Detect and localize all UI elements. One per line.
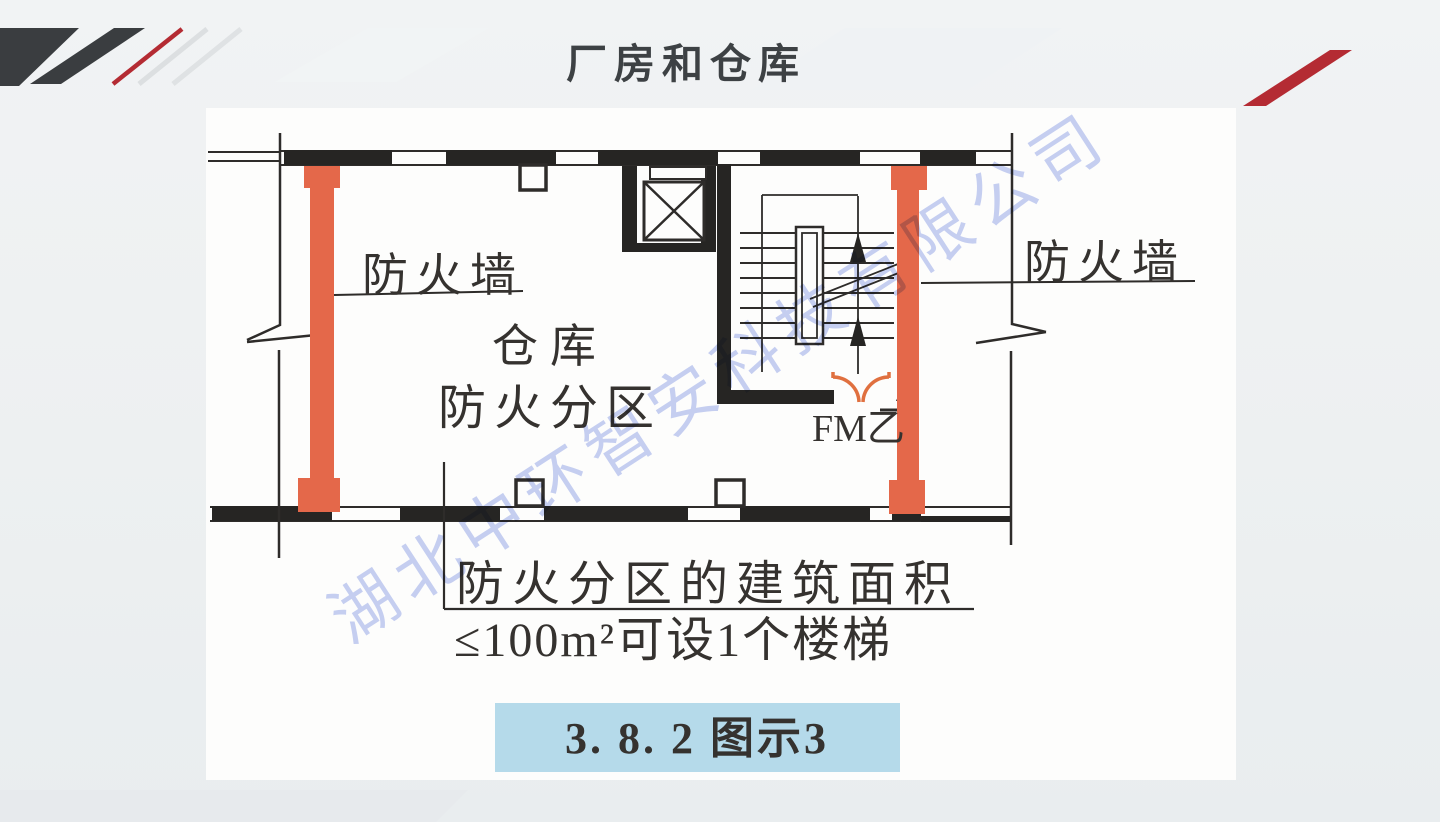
zone-label-line2: 防火分区 xyxy=(438,382,662,435)
faint-parallelogram-left xyxy=(275,28,489,82)
fire-wall-left-bottom-cap xyxy=(298,478,340,512)
fire-door-label: FM乙 xyxy=(812,408,905,450)
elevator-door-slot xyxy=(650,167,706,179)
elevator-wall-bottom xyxy=(622,243,716,252)
slide-title: 厂房和仓库 xyxy=(566,30,806,90)
fire-door xyxy=(833,372,906,410)
caption-line1: 防火分区的建筑面积 xyxy=(456,558,960,611)
top-right-red-stripe xyxy=(1243,50,1352,106)
figure-panel: 防火墙 防火墙 仓库 防火分区 FM乙 防火分区的建筑面积 ≤100m²可设1个… xyxy=(206,108,1236,780)
caption-line2: ≤100m²可设1个楼梯 xyxy=(454,614,892,667)
floor-plan-drawing: 防火墙 防火墙 仓库 防火分区 FM乙 防火分区的建筑面积 ≤100m²可设1个… xyxy=(206,108,1236,780)
elevator-wall-left xyxy=(622,166,637,252)
stair-wall-bottom xyxy=(717,390,834,404)
fire-wall-right-bottom-cap xyxy=(889,480,925,514)
bottom-left-band xyxy=(0,790,468,822)
figure-caption-text: 3. 8. 2 图示3 xyxy=(565,714,829,763)
stairwell xyxy=(717,164,901,404)
right-boundary-break-line xyxy=(976,133,1046,545)
firewall-label-right: 防火墙 xyxy=(1024,237,1186,288)
stair-rail-outer xyxy=(796,227,823,344)
bottom-wall-column-stub-1 xyxy=(516,480,543,506)
fire-walls xyxy=(298,166,927,514)
firewall-label-left: 防火墙 xyxy=(362,250,524,301)
fire-wall-left xyxy=(310,168,334,484)
stair-up-arrow-icon-lower xyxy=(850,316,866,346)
elevator-shaft xyxy=(622,166,716,252)
door-swing-icon xyxy=(833,372,889,402)
corner-stripe-gray-2 xyxy=(173,29,241,84)
top-wall-left-stub xyxy=(208,152,280,161)
bottom-wall-column-stub-2 xyxy=(716,480,744,506)
zone-label-line1: 仓库 xyxy=(492,321,608,372)
slide: 厂房和仓库 xyxy=(0,0,1440,822)
top-wall-column-stub xyxy=(520,165,546,190)
stair-wall-left xyxy=(717,164,731,404)
top-wall-thick-segments xyxy=(284,150,976,165)
